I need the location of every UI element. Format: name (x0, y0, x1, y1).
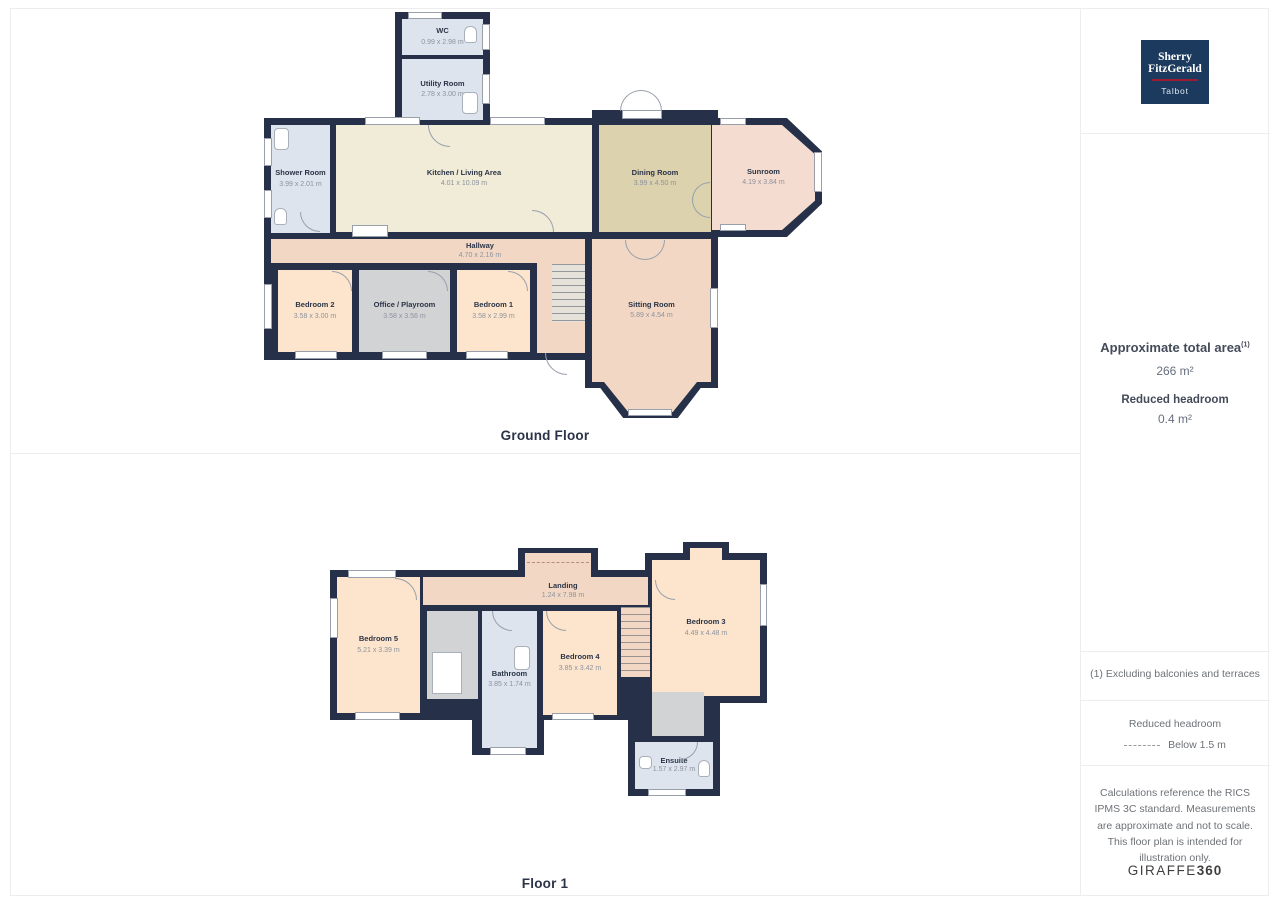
window (490, 117, 545, 125)
total-area-value: 266 m² (1080, 364, 1270, 378)
window (720, 224, 746, 231)
room-bathroom: Bathroom 3.85 x 1.74 m (482, 611, 537, 748)
room-name: Bedroom 4 (559, 652, 601, 663)
room-name: Bathroom (488, 669, 530, 680)
sink-fixture (639, 756, 652, 769)
room-dims: 2.78 x 3.00 m (420, 90, 464, 100)
room-dims: 0.99 x 2.98 m (421, 38, 463, 48)
room-dims: 1.24 x 7.98 m (542, 592, 584, 600)
room-name: Shower Room (275, 168, 325, 179)
room-dims: 4.01 x 10.09 m (427, 179, 501, 189)
window (382, 351, 427, 359)
room-dims: 3.85 x 3.42 m (559, 664, 601, 674)
sidebar-section-divider (1080, 700, 1270, 701)
kitchen-island (352, 225, 388, 237)
room-dims: 3.99 x 2.01 m (275, 180, 325, 190)
sidebar-section-divider (1080, 651, 1270, 652)
room-dims: 3.85 x 1.74 m (488, 680, 530, 690)
logo-rule (1152, 79, 1198, 81)
legend-row: Below 1.5 m (1080, 737, 1270, 753)
window (264, 284, 272, 329)
bathroom-fixture (514, 646, 530, 670)
window (348, 570, 396, 578)
bathroom-fixture (274, 128, 289, 150)
toilet-fixture (698, 760, 710, 777)
utility-fixture (462, 92, 478, 114)
window (466, 351, 508, 359)
room-name: Bedroom 1 (472, 300, 514, 311)
sidebar-section-divider (1080, 133, 1270, 134)
brand-regular: GIRAFFE (1128, 863, 1197, 878)
window (295, 351, 337, 359)
room-name: Bedroom 3 (685, 617, 727, 628)
window (628, 409, 672, 416)
sidebar: Sherry FitzGerald Talbot Approximate tot… (1080, 8, 1270, 896)
total-area-title: Approximate total area(1) (1080, 340, 1270, 355)
closet-inner (432, 652, 462, 694)
window (710, 288, 718, 328)
room-name: Hallway (459, 242, 501, 251)
reduced-headroom-value: 0.4 m² (1080, 412, 1270, 426)
sidebar-section-divider (1080, 765, 1270, 766)
reduced-headroom-title: Reduced headroom (1080, 394, 1270, 406)
window (408, 12, 442, 19)
room-dims: 3.58 x 2.99 m (472, 312, 514, 322)
room-dims: 4.49 x 4.48 m (685, 629, 727, 639)
floor-section-divider (10, 453, 1080, 454)
room-dims: 4.19 x 3.84 m (742, 178, 784, 188)
logo-line2: FitzGerald (1141, 64, 1209, 76)
window (482, 24, 490, 50)
window (814, 152, 822, 192)
sidebar-divider (1080, 8, 1081, 896)
window (330, 598, 338, 638)
room-landing-nook (525, 553, 591, 579)
brand-bold: 360 (1197, 863, 1223, 878)
window (552, 713, 594, 720)
room-landing: Landing 1.24 x 7.98 m (423, 577, 648, 605)
room-dims: 3.58 x 3.56 m (374, 312, 436, 322)
room-dims: 5.21 x 3.39 m (357, 646, 399, 656)
room-name: Utility Room (420, 79, 464, 90)
disclaimer: Calculations reference the RICS IPMS 3C … (1080, 785, 1270, 866)
window (490, 747, 526, 755)
room-dims: 5.89 x 4.54 m (628, 311, 675, 321)
window (648, 789, 686, 796)
room-dims: 3.99 x 4.50 m (632, 179, 679, 189)
window (720, 118, 746, 125)
logo-line3: Talbot (1141, 86, 1209, 96)
window (355, 712, 400, 720)
window (264, 190, 272, 218)
footnote: (1) Excluding balconies and terraces (1080, 666, 1270, 682)
plan-title-floor1: Floor 1 (10, 876, 1080, 891)
room-name: Office / Playroom (374, 300, 436, 311)
total-area-title-text: Approximate total area (1100, 340, 1241, 355)
toilet-fixture (464, 26, 477, 43)
room-name: Sunroom (742, 167, 784, 178)
room-name: WC (421, 26, 463, 37)
room-name: Dining Room (632, 168, 679, 179)
room-sitting: Sitting Room 5.89 x 4.54 m (592, 239, 711, 382)
legend-label: Below 1.5 m (1168, 737, 1226, 753)
legend-title: Reduced headroom (1080, 716, 1270, 732)
window (482, 74, 490, 104)
closet (652, 692, 704, 736)
room-name: Sitting Room (628, 300, 675, 311)
logo-line1: Sherry (1141, 52, 1209, 64)
room-name: Bedroom 2 (294, 300, 336, 311)
plan-title-ground-floor: Ground Floor (10, 428, 1080, 443)
stairs (552, 264, 585, 322)
room-dining: Dining Room 3.99 x 4.50 m (599, 125, 711, 232)
window (760, 584, 767, 626)
stairs (621, 607, 650, 677)
reduced-headroom-dashed-line (527, 562, 589, 563)
room-name: Bedroom 5 (357, 634, 399, 645)
room-dims: 1.57 x 2.97 m (653, 766, 695, 774)
toilet-fixture (274, 208, 287, 225)
dashed-line-sample (1124, 745, 1160, 746)
room-sunroom: Sunroom 4.19 x 3.84 m (712, 125, 815, 230)
room-name: Ensuite (653, 757, 695, 766)
agency-logo: Sherry FitzGerald Talbot (1141, 40, 1209, 104)
door-opening (622, 110, 662, 119)
giraffe360-brand: GIRAFFE360 (1080, 863, 1270, 878)
room-kitchen-living: Kitchen / Living Area 4.01 x 10.09 m (336, 125, 592, 232)
room-bedroom3-nook (690, 548, 722, 562)
window (365, 117, 420, 125)
room-dims: 3.58 x 3.00 m (294, 312, 336, 322)
room-name: Landing (542, 582, 584, 591)
room-dims: 4.70 x 2.16 m (459, 252, 501, 260)
room-name: Kitchen / Living Area (427, 168, 501, 179)
window (264, 138, 272, 166)
footnote-marker: (1) (1241, 342, 1250, 349)
